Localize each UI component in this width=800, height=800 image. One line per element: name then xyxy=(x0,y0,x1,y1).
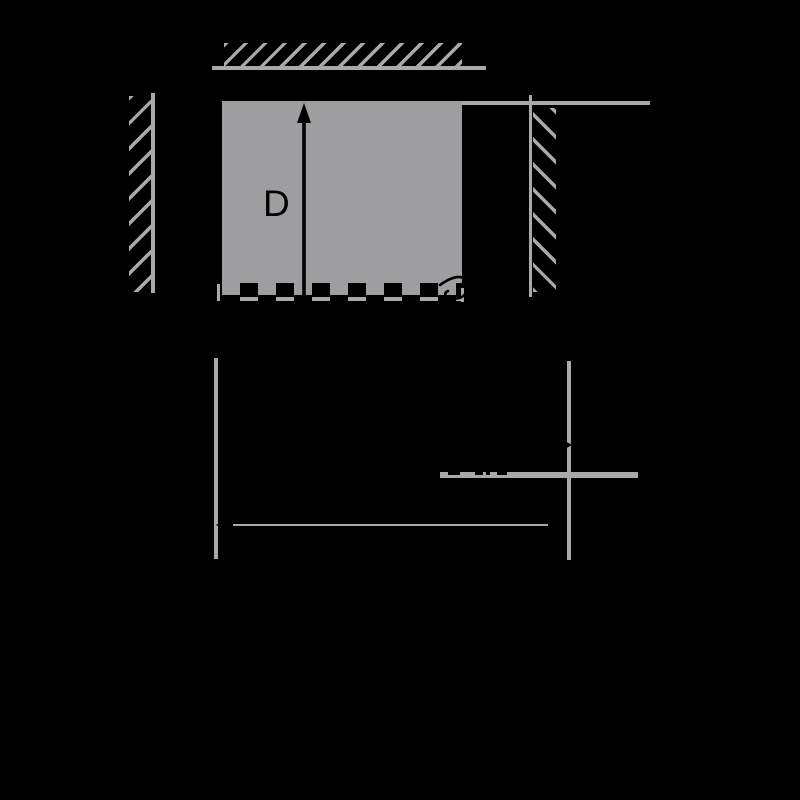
lower-dimension-line xyxy=(233,524,548,527)
distance-label: D xyxy=(263,185,290,222)
left-wall-hatching xyxy=(129,96,152,292)
right-wall-hatching xyxy=(533,108,556,292)
lower-right-boundary-line xyxy=(567,361,571,560)
left-wall-line xyxy=(151,93,155,293)
dash-left-end-tick xyxy=(217,284,220,301)
right-wall-line xyxy=(529,95,533,297)
ink-remnant-mark xyxy=(486,472,490,475)
figure-canvas: D xyxy=(0,0,800,800)
ink-remnant-mark xyxy=(448,472,460,475)
ink-remnant-mark xyxy=(475,472,483,475)
ink-remnant-mark xyxy=(497,472,507,475)
ceiling-hatching xyxy=(224,43,462,67)
equilibrium-dash-underline xyxy=(240,297,462,301)
lower-left-boundary-line xyxy=(214,358,218,559)
surface-level-line xyxy=(461,101,650,105)
lower-level-line xyxy=(440,472,638,478)
dash-right-end-tick xyxy=(461,288,464,302)
gray-block xyxy=(222,101,462,283)
ceiling-line xyxy=(212,66,486,70)
equilibrium-dashed-line xyxy=(222,283,462,295)
